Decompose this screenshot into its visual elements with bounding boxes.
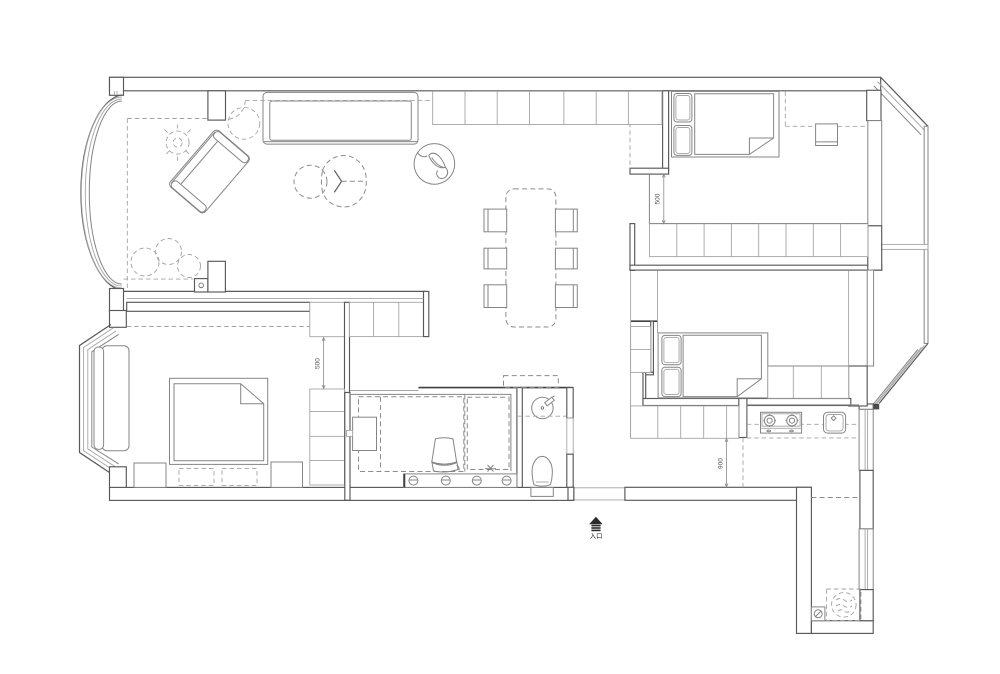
svg-text:500: 500 <box>314 358 321 369</box>
svg-text:入口: 入口 <box>590 532 603 540</box>
svg-text:500: 500 <box>655 193 662 204</box>
svg-text:900: 900 <box>717 458 724 469</box>
